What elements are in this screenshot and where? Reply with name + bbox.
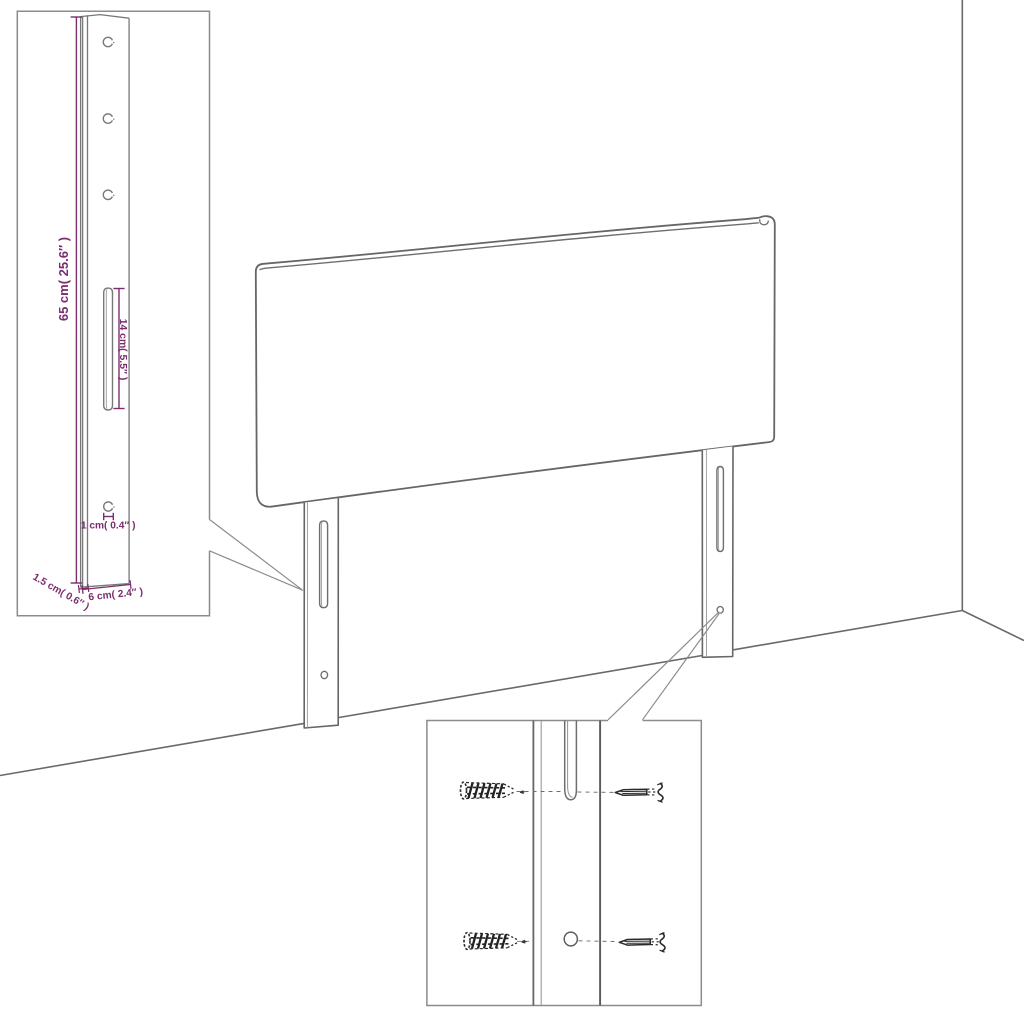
svg-text:1 cm( 0.4″ ): 1 cm( 0.4″ ) xyxy=(81,520,136,531)
svg-text:65 cm( 25.6″ ): 65 cm( 25.6″ ) xyxy=(56,237,71,321)
svg-text:14 cm( 5.5″ ): 14 cm( 5.5″ ) xyxy=(117,319,128,381)
